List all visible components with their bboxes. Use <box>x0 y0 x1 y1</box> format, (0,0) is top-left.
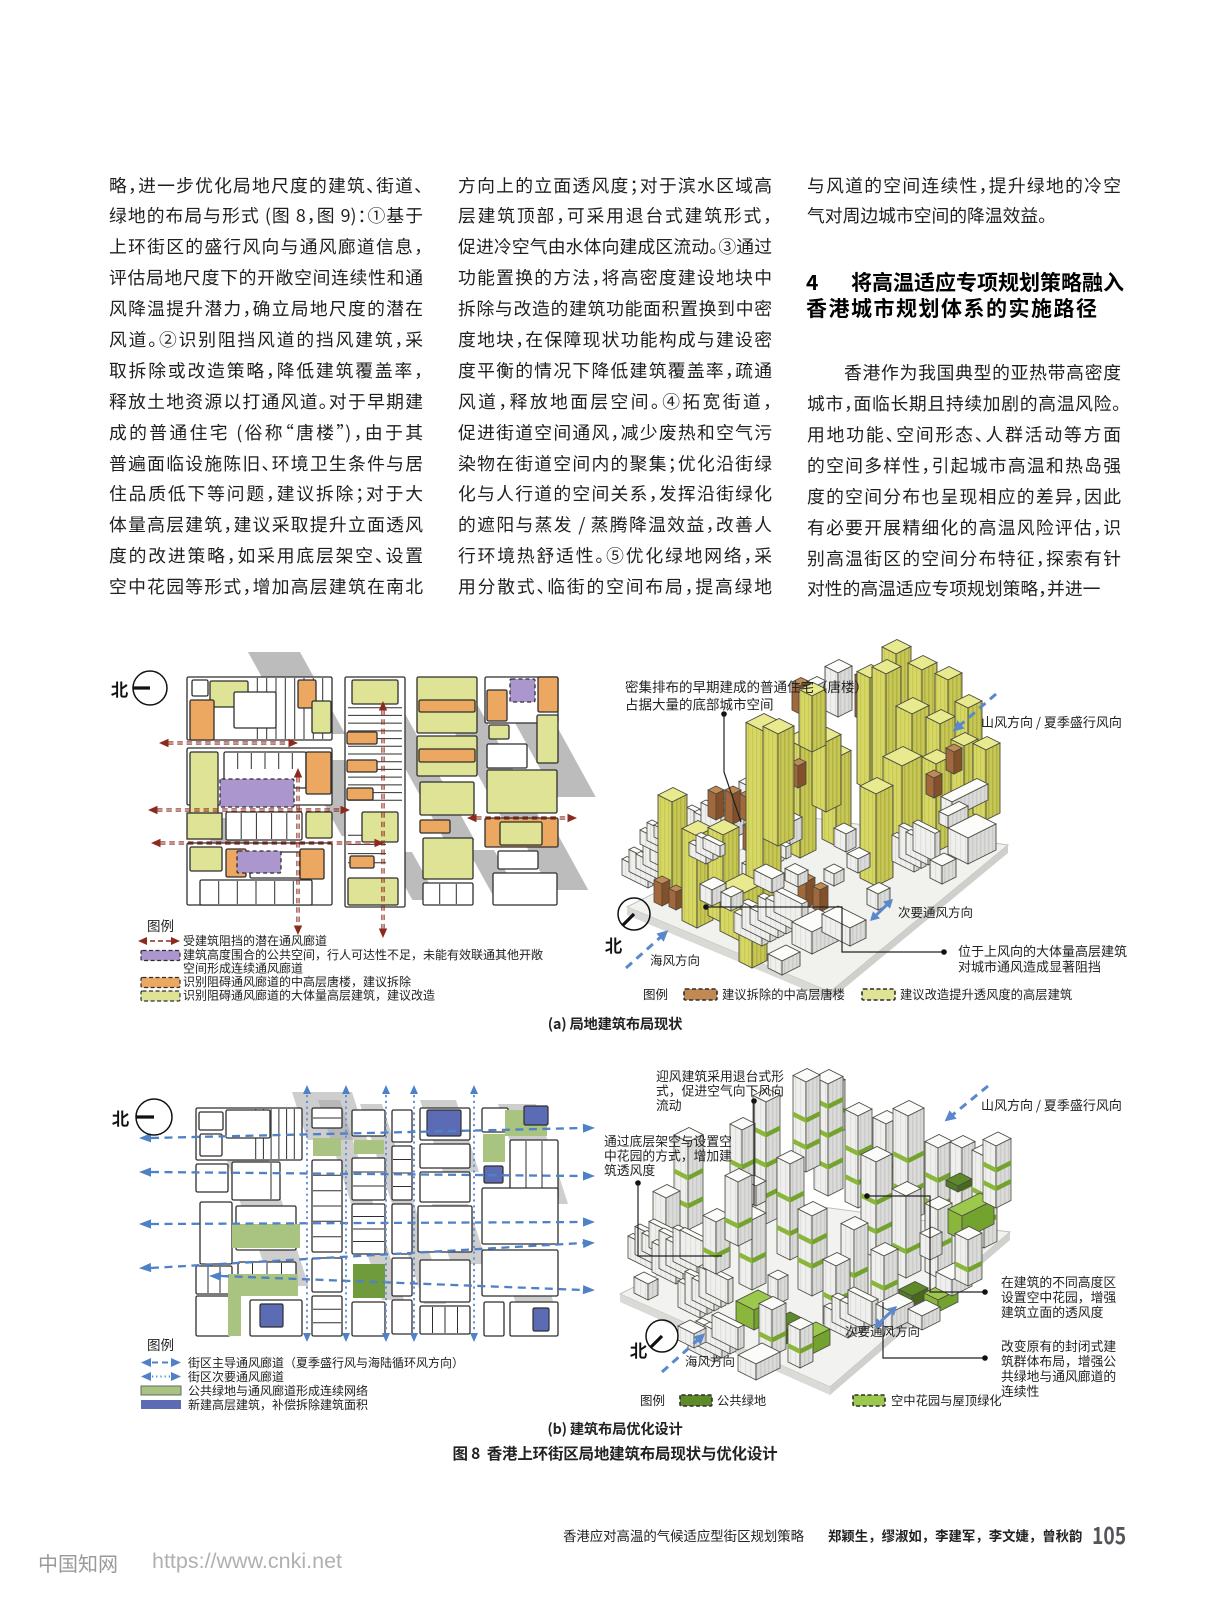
svg-text:筑透风度: 筑透风度 <box>604 1160 655 1179</box>
svg-text:图例: 图例 <box>643 984 668 1003</box>
svg-text:占据大量的底部城市空间: 占据大量的底部城市空间 <box>625 694 774 714</box>
svg-text:山风方向 / 夏季盛行风向: 山风方向 / 夏季盛行风向 <box>981 1095 1122 1114</box>
svg-text:山风方向 / 夏季盛行风向: 山风方向 / 夏季盛行风向 <box>981 712 1122 731</box>
svg-text:北: 北 <box>112 1105 129 1130</box>
svg-text:建议改造提升透风度的高层建筑: 建议改造提升透风度的高层建筑 <box>900 985 1072 1003</box>
svg-text:建议拆除的中高层唐楼: 建议拆除的中高层唐楼 <box>722 985 845 1003</box>
svg-text:海风方向: 海风方向 <box>685 1351 735 1370</box>
svg-text:图例: 图例 <box>640 1390 665 1409</box>
svg-text:海风方向: 海风方向 <box>650 950 700 969</box>
svg-text:图例: 图例 <box>147 1334 174 1354</box>
svg-text:次要通风方向: 次要通风方向 <box>845 1321 920 1340</box>
svg-text:北: 北 <box>630 1337 647 1362</box>
svg-text:公共绿地: 公共绿地 <box>717 1391 766 1409</box>
svg-text:北: 北 <box>605 932 622 957</box>
svg-text:流动: 流动 <box>656 1095 682 1114</box>
svg-text:对城市通风造成显著阻挡: 对城市通风造成显著阻挡 <box>958 957 1101 976</box>
svg-text:建筑立面的透风度: 建筑立面的透风度 <box>1001 1302 1104 1321</box>
svg-text:连续性: 连续性 <box>1001 1381 1040 1400</box>
svg-text:北: 北 <box>111 676 128 701</box>
svg-text:新建高层建筑，补偿拆除建筑面积: 新建高层建筑，补偿拆除建筑面积 <box>188 1396 368 1413</box>
svg-text:次要通风方向: 次要通风方向 <box>898 902 973 921</box>
svg-text:识别阻碍通风廊道的大体量高层建筑，建议改造: 识别阻碍通风廊道的大体量高层建筑，建议改造 <box>183 987 435 1004</box>
svg-text:空中花园与屋顶绿化: 空中花园与屋顶绿化 <box>891 1391 1002 1409</box>
svg-text:图例: 图例 <box>147 915 174 935</box>
